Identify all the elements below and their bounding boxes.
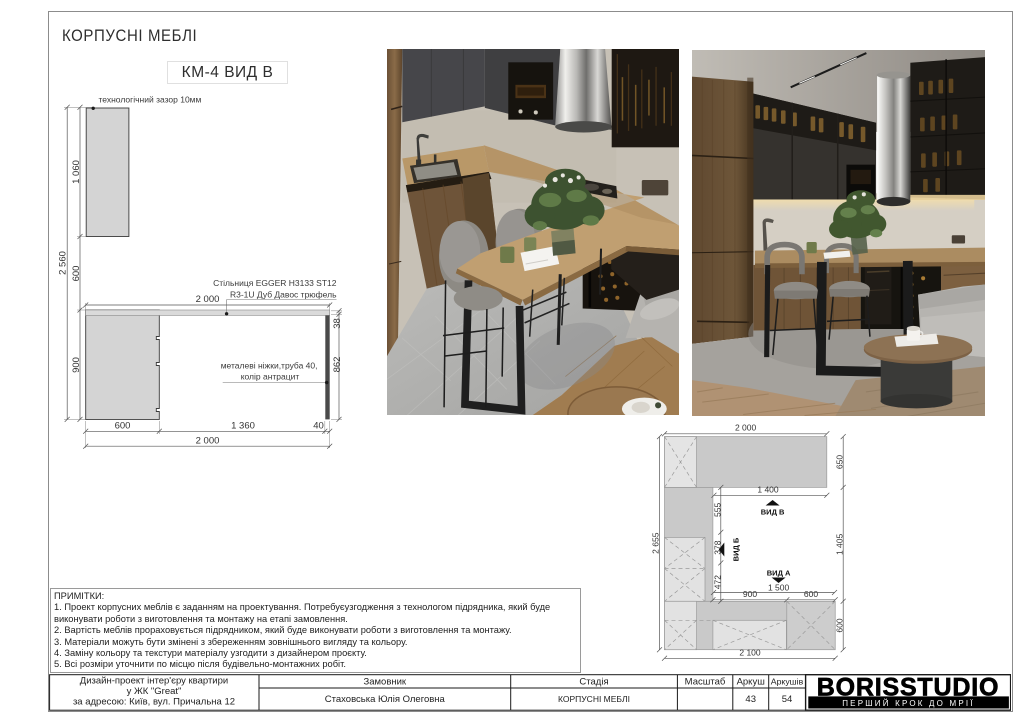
svg-text:ВИД А: ВИД А	[767, 569, 791, 578]
svg-text:2 000: 2 000	[196, 435, 220, 446]
svg-text:технологічний зазор 10мм: технологічний зазор 10мм	[99, 95, 202, 105]
svg-text:40: 40	[313, 421, 324, 432]
svg-text:600: 600	[835, 618, 845, 632]
svg-text:650: 650	[835, 455, 845, 469]
svg-text:колір антрацит: колір антрацит	[241, 372, 300, 382]
svg-text:900: 900	[71, 357, 82, 373]
svg-text:600: 600	[71, 266, 82, 282]
svg-text:38: 38	[332, 318, 343, 329]
svg-text:2 100: 2 100	[739, 648, 761, 658]
svg-text:Стадія: Стадія	[579, 677, 608, 688]
svg-text:900: 900	[743, 589, 757, 599]
svg-text:2 000: 2 000	[196, 294, 220, 305]
svg-text:1 405: 1 405	[835, 533, 845, 555]
svg-text:1 060: 1 060	[71, 160, 82, 184]
svg-text:2 655: 2 655	[651, 532, 661, 554]
svg-text:за адресою: Київ, вул. Причаль: за адресою: Київ, вул. Причальна 12	[73, 697, 235, 708]
svg-text:КОРПУСНІ МЕБЛІ: КОРПУСНІ МЕБЛІ	[558, 694, 630, 704]
svg-text:2 560: 2 560	[58, 251, 69, 275]
svg-text:ВИД Б: ВИД Б	[732, 537, 741, 561]
svg-text:54: 54	[782, 694, 793, 705]
svg-text:Аркушів: Аркушів	[771, 677, 804, 687]
svg-text:472: 472	[713, 575, 723, 589]
svg-text:43: 43	[745, 694, 756, 705]
svg-text:Стільниця EGGER H3133 ST12: Стільниця EGGER H3133 ST12	[213, 278, 337, 288]
svg-text:1 400: 1 400	[757, 484, 779, 494]
svg-text:1 360: 1 360	[231, 421, 255, 432]
svg-text:ПЕРШИЙ КРОК ДО МРІЇ: ПЕРШИЙ КРОК ДО МРІЇ	[842, 699, 975, 708]
svg-text:555: 555	[713, 503, 723, 517]
svg-text:1 500: 1 500	[768, 582, 790, 592]
svg-text:Масштаб: Масштаб	[685, 677, 726, 688]
svg-text:Стаховська Юлія Олеговна: Стаховська Юлія Олеговна	[325, 694, 446, 705]
svg-text:металеві ніжки,труба 40,: металеві ніжки,труба 40,	[221, 361, 318, 371]
svg-text:Замовник: Замовник	[364, 677, 407, 688]
svg-text:2 000: 2 000	[735, 423, 757, 433]
svg-text:ВИД В: ВИД В	[761, 508, 785, 517]
svg-text:600: 600	[804, 589, 818, 599]
svg-text:Аркуш: Аркуш	[737, 677, 765, 688]
svg-text:Дизайн-проект інтер'єру кварти: Дизайн-проект інтер'єру квартири	[80, 676, 228, 687]
svg-text:600: 600	[115, 421, 131, 432]
svg-text:R3-1U Дуб Давос трюфель: R3-1U Дуб Давос трюфель	[230, 290, 337, 300]
svg-text:у ЖК "Great": у ЖК "Great"	[127, 686, 182, 697]
svg-text:862: 862	[332, 357, 343, 373]
